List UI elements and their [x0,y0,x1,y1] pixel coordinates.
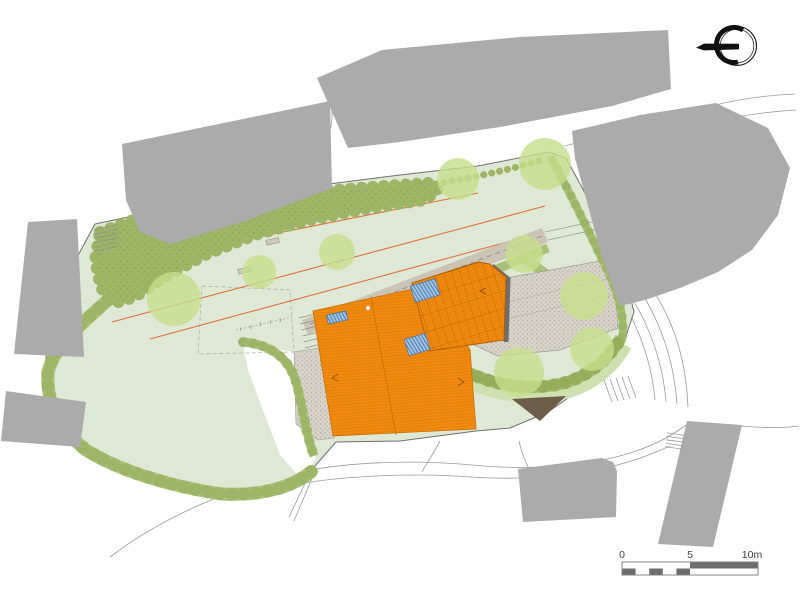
north-arrow-icon [696,27,757,66]
tree-canopy [242,255,276,289]
tree-canopy [494,347,544,397]
tree-canopy [560,272,608,320]
scale-label-10m: 10m [742,549,763,561]
tree-canopy [570,327,614,371]
tree-canopy [519,138,571,190]
tree-canopy [319,234,355,270]
site-plan-canvas: 0 5 10m [0,0,800,600]
tree-canopy [147,272,201,326]
roof-vent [366,306,370,310]
road [741,426,799,428]
scale-label-5: 5 [687,549,693,561]
site-plan-drawing: 0 5 10m [0,0,800,600]
neighbor-building [14,219,84,357]
tree-canopy [505,235,543,273]
tree-canopy [437,158,479,200]
scale-label-0: 0 [619,549,625,561]
neighbor-building [658,421,742,547]
scale-bar: 0 5 10m [619,549,762,575]
neighbor-building [518,458,617,522]
